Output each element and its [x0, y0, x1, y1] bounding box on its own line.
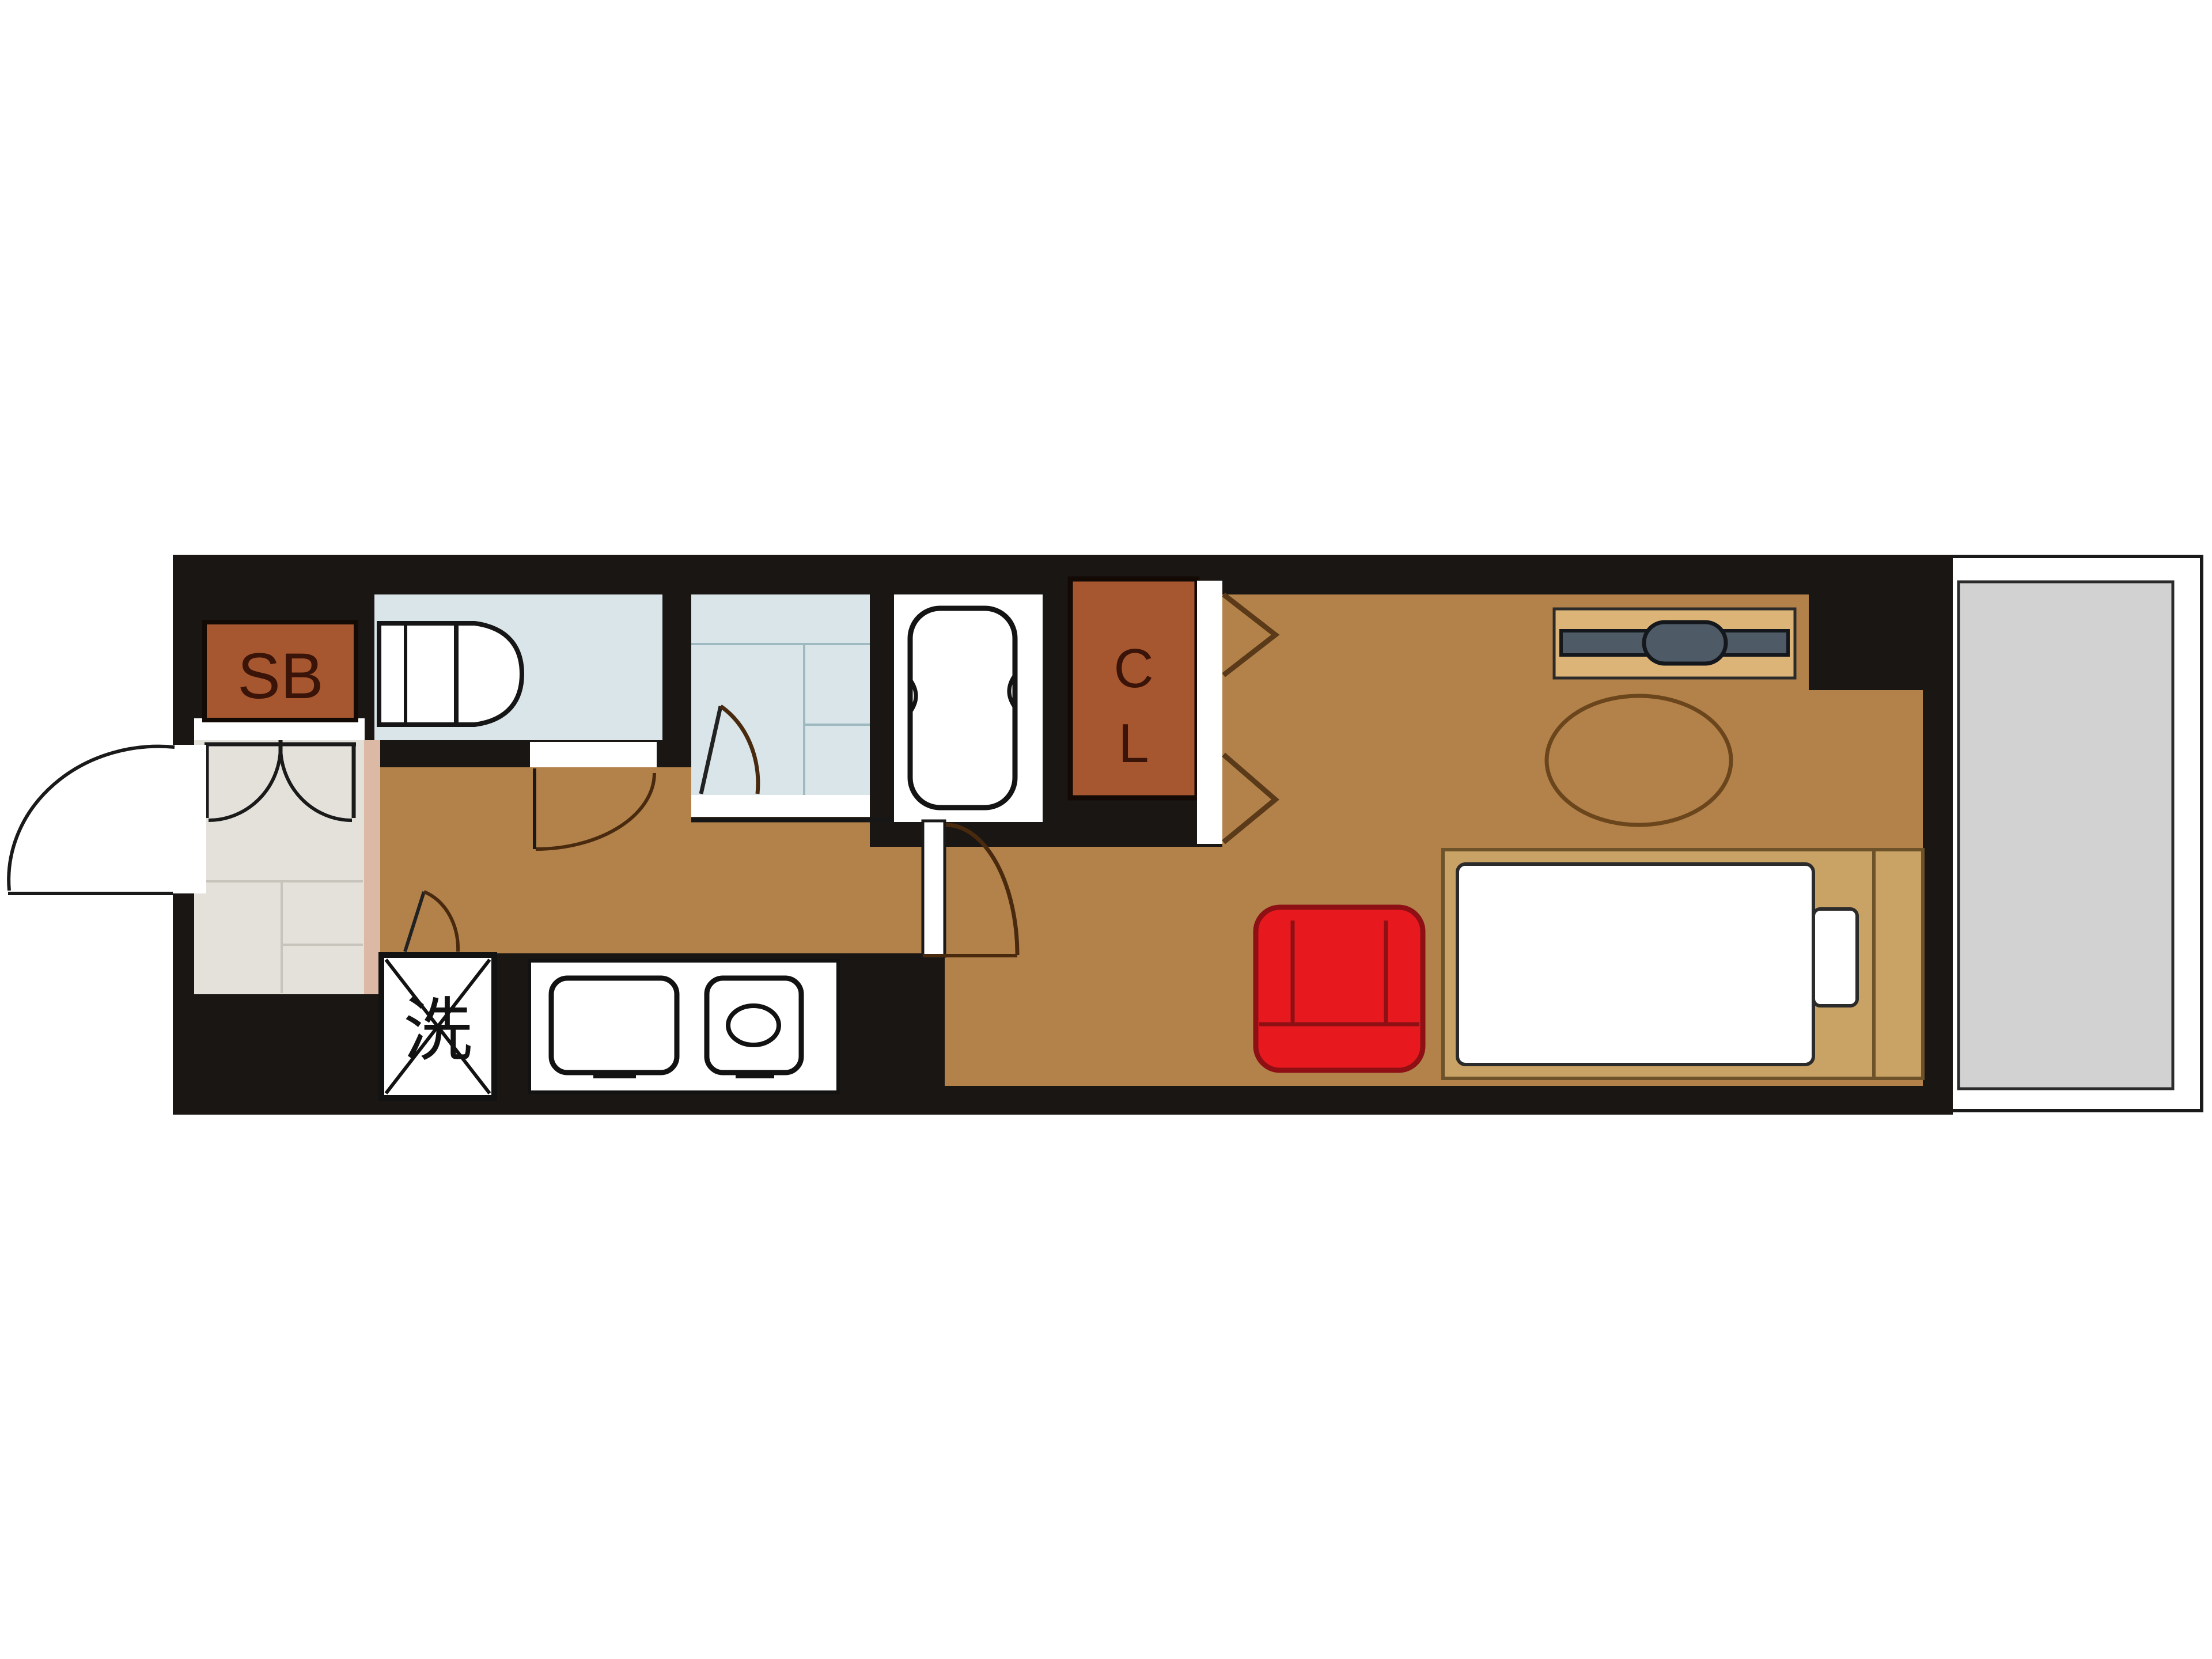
corner-pillar [1809, 555, 1950, 690]
door-leaf [923, 821, 945, 956]
closet-label-c: C [1113, 638, 1153, 699]
toilet-tank [379, 623, 456, 725]
kitchen-sink [551, 978, 677, 1073]
shoe-box: SB [204, 622, 356, 720]
closet-label-l: L [1118, 713, 1149, 774]
bathroom-floor [691, 594, 870, 795]
entrance [8, 718, 380, 994]
washing-machine-label: 洗 [403, 992, 472, 1069]
front-door-swing-arc [9, 747, 175, 891]
tv-stand-center [1644, 622, 1726, 664]
bed [1443, 850, 1923, 1078]
armchair-body [1256, 907, 1423, 1070]
bathtub [910, 608, 1015, 808]
stove-burner [728, 1006, 779, 1045]
entrance-floor [194, 740, 364, 994]
tv-board [1554, 609, 1795, 678]
entrance-step-strip [364, 740, 380, 994]
living-room-floor-west [945, 847, 1222, 1086]
floor-plan: SB C L [0, 0, 2212, 1659]
front-door-opening [171, 745, 206, 893]
balcony-floor [1959, 582, 2173, 1089]
bed-pillow [1813, 909, 1857, 1006]
toilet-bowl [456, 623, 522, 725]
bathroom-threshold [691, 795, 870, 817]
toilet-door-opening [530, 742, 657, 767]
armchair [1256, 907, 1423, 1070]
shoe-box-label: SB [237, 640, 323, 712]
closet-opening-strip [1197, 581, 1222, 844]
bathtub-room [894, 594, 1043, 822]
bed-mattress [1457, 864, 1813, 1065]
balcony [1950, 556, 2202, 1111]
